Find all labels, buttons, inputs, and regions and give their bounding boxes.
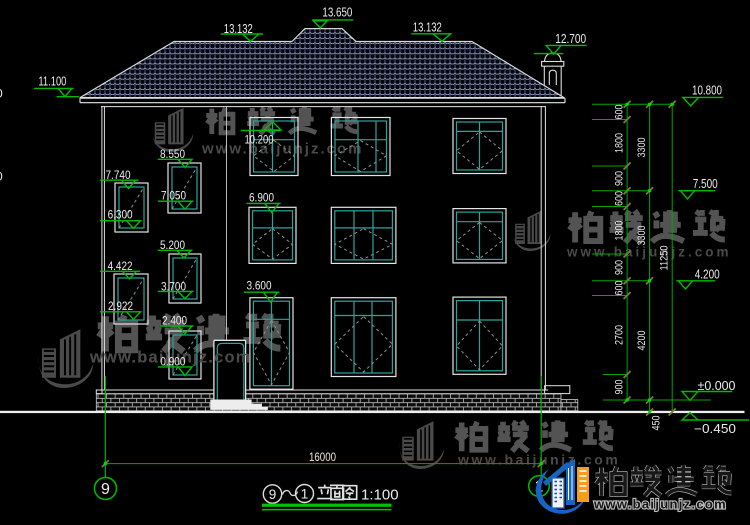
- svg-text:5.200: 5.200: [160, 238, 185, 252]
- svg-text:6.300: 6.300: [108, 208, 133, 222]
- svg-text:600: 600: [614, 191, 626, 206]
- svg-text:2700: 2700: [614, 325, 626, 345]
- svg-text:900: 900: [614, 171, 626, 186]
- svg-text:0: 0: [0, 170, 3, 184]
- svg-text:900: 900: [614, 260, 626, 275]
- svg-text:2.922: 2.922: [108, 299, 133, 313]
- svg-text:600: 600: [614, 281, 626, 296]
- svg-text:3.700: 3.700: [161, 279, 186, 293]
- svg-text:3300: 3300: [636, 226, 648, 246]
- svg-text:13.132: 13.132: [224, 22, 253, 36]
- svg-text:7.500: 7.500: [693, 177, 718, 191]
- svg-text:2.400: 2.400: [162, 313, 187, 327]
- svg-text:1:100: 1:100: [361, 487, 399, 504]
- svg-text:1800: 1800: [614, 133, 626, 153]
- svg-text:450: 450: [651, 416, 663, 431]
- svg-text:13.650: 13.650: [322, 5, 352, 19]
- svg-text:www.baijunjz.com: www.baijunjz.com: [201, 141, 363, 158]
- svg-text:9: 9: [269, 487, 277, 502]
- svg-text:4200: 4200: [636, 331, 648, 351]
- svg-text:0.900: 0.900: [160, 355, 185, 369]
- svg-text:7.740: 7.740: [106, 168, 131, 182]
- svg-text:8.550: 8.550: [160, 147, 185, 161]
- svg-text:www.baijunjz.com: www.baijunjz.com: [566, 245, 732, 260]
- svg-text:±0.000: ±0.000: [698, 379, 736, 393]
- svg-text:3300: 3300: [636, 138, 648, 158]
- svg-text:1: 1: [301, 487, 309, 502]
- svg-text:16000: 16000: [309, 450, 336, 464]
- svg-text:10.800: 10.800: [692, 84, 722, 98]
- svg-text:10.200: 10.200: [245, 133, 274, 147]
- svg-text:3.600: 3.600: [247, 279, 272, 293]
- svg-text:13.132: 13.132: [413, 21, 442, 35]
- svg-text:www.baijunjz.com: www.baijunjz.com: [593, 497, 727, 512]
- svg-text:11250: 11250: [659, 246, 671, 271]
- svg-text:−0.450: −0.450: [694, 422, 736, 436]
- svg-text:7.050: 7.050: [161, 189, 186, 203]
- svg-text:1800: 1800: [614, 221, 626, 241]
- svg-text:900: 900: [614, 380, 626, 395]
- svg-text:11.100: 11.100: [38, 75, 66, 89]
- svg-text:6.900: 6.900: [249, 190, 274, 204]
- svg-text:4.422: 4.422: [108, 259, 133, 273]
- svg-text:0: 0: [0, 87, 3, 101]
- svg-text:9: 9: [101, 481, 110, 498]
- svg-text:12.700: 12.700: [555, 32, 586, 46]
- svg-text:600: 600: [614, 105, 626, 120]
- svg-text:4.200: 4.200: [695, 267, 720, 281]
